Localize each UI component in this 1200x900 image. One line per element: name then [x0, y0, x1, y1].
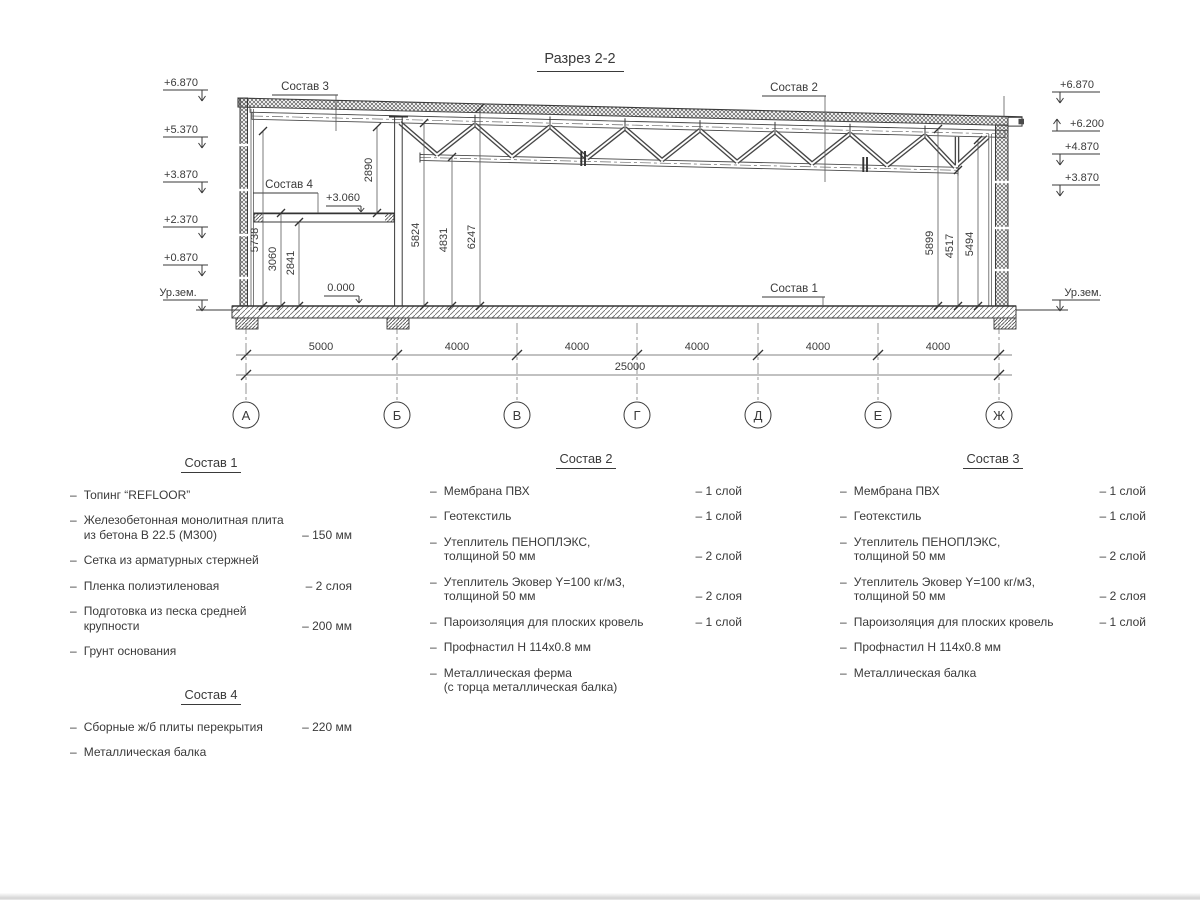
- composition-item: –Сетка из арматурных стержней: [70, 553, 352, 568]
- composition-item: –Утеплитель Эковер Y=100 кг/м3, толщиной…: [840, 575, 1146, 604]
- composition-list: –Сборные ж/б плиты перекрытия– 220 мм–Ме…: [70, 720, 352, 760]
- svg-text:Состав 1: Состав 1: [770, 283, 818, 295]
- composition-item: –Топинг “REFLOOR”: [70, 488, 352, 503]
- svg-text:6247: 6247: [466, 225, 478, 249]
- composition-block-3: Состав 3 –Мембрана ПВХ– 1 слой–Геотексти…: [840, 452, 1146, 691]
- composition-block-4: Состав 4 –Сборные ж/б плиты перекрытия– …: [70, 688, 352, 771]
- elevation-marks-right: +6.870 +6.200 +4.870 +3.870 Ур.зем.: [1052, 79, 1104, 311]
- composition-title: Состав 4: [181, 688, 240, 705]
- leader-sostav1: Состав 1: [762, 283, 825, 306]
- svg-text:4000: 4000: [445, 341, 469, 353]
- svg-text:4517: 4517: [944, 234, 956, 258]
- svg-text:2890: 2890: [363, 158, 375, 182]
- svg-text:+5.370: +5.370: [164, 124, 198, 136]
- intermediate-slab: [254, 213, 394, 222]
- svg-text:Ур.зем.: Ур.зем.: [159, 287, 196, 299]
- svg-text:+6.870: +6.870: [164, 77, 198, 89]
- composition-item: –Грунт основания: [70, 644, 352, 659]
- svg-text:4831: 4831: [438, 228, 450, 252]
- svg-text:5000: 5000: [309, 341, 333, 353]
- level-mark-3060: +3.060: [326, 192, 364, 212]
- composition-item: –Сборные ж/б плиты перекрытия– 220 мм: [70, 720, 352, 735]
- svg-text:+3.060: +3.060: [326, 192, 360, 204]
- svg-text:5899: 5899: [924, 231, 936, 255]
- svg-text:5824: 5824: [410, 223, 422, 247]
- axis-label: Д: [754, 408, 763, 423]
- composition-item: –Пароизоляция для плоских кровель– 1 сло…: [430, 615, 742, 630]
- svg-text:5738: 5738: [249, 228, 261, 252]
- axis-bubbles: А Б В Г Д Е Ж: [233, 402, 1012, 428]
- svg-text:3060: 3060: [267, 247, 279, 271]
- svg-text:Состав 2: Состав 2: [770, 82, 818, 94]
- dimension-line-total: 25000: [236, 361, 1012, 380]
- svg-text:4000: 4000: [685, 341, 709, 353]
- scan-edge-artifact: [0, 893, 1200, 900]
- left-wall: [239, 98, 254, 306]
- composition-item: –Металлическая ферма (с торца металличес…: [430, 666, 742, 695]
- composition-item: –Утеплитель Эковер Y=100 кг/м3, толщиной…: [430, 575, 742, 604]
- composition-item: –Геотекстиль– 1 слой: [430, 509, 742, 524]
- svg-text:25000: 25000: [615, 361, 646, 373]
- composition-item: –Профнастил Н 114х0.8 мм: [430, 640, 742, 655]
- svg-text:5494: 5494: [964, 232, 976, 256]
- svg-text:Состав 3: Состав 3: [281, 81, 329, 93]
- drawing-sheet: Разрез 2-2: [0, 0, 1200, 900]
- svg-text:Состав 4: Состав 4: [265, 179, 313, 191]
- axis-label: Б: [393, 408, 402, 423]
- composition-item: –Пленка полиэтиленовая– 2 слоя: [70, 579, 352, 594]
- axis-label: А: [242, 408, 251, 423]
- composition-block-2: Состав 2 –Мембрана ПВХ– 1 слой–Геотексти…: [430, 452, 742, 706]
- axis-label: Е: [874, 408, 883, 423]
- composition-list: –Мембрана ПВХ– 1 слой–Геотекстиль– 1 сло…: [430, 484, 742, 695]
- svg-text:+4.870: +4.870: [1065, 141, 1099, 153]
- svg-text:+2.370: +2.370: [164, 214, 198, 226]
- svg-text:+6.200: +6.200: [1070, 118, 1104, 130]
- composition-item: –Пароизоляция для плоских кровель– 1 сло…: [840, 615, 1146, 630]
- axis-label: В: [513, 408, 522, 423]
- composition-list: –Топинг “REFLOOR”–Железобетонная монолит…: [70, 488, 352, 659]
- composition-item: –Геотекстиль– 1 слой: [840, 509, 1146, 524]
- svg-text:+3.870: +3.870: [1065, 172, 1099, 184]
- section-drawing: Разрез 2-2: [0, 0, 1200, 444]
- composition-item: –Металлическая балка: [70, 745, 352, 760]
- composition-item: –Подготовка из песка средней крупности– …: [70, 604, 352, 633]
- composition-title: Состав 2: [556, 452, 615, 469]
- floor-slab: [196, 306, 1068, 329]
- svg-text:4000: 4000: [565, 341, 589, 353]
- composition-item: –Мембрана ПВХ– 1 слой: [840, 484, 1146, 499]
- svg-text:2841: 2841: [285, 251, 297, 275]
- composition-title: Состав 1: [181, 456, 240, 473]
- svg-text:0.000: 0.000: [327, 282, 355, 294]
- composition-item: –Железобетонная монолитная плита из бето…: [70, 513, 352, 542]
- composition-item: –Мембрана ПВХ– 1 слой: [430, 484, 742, 499]
- svg-text:+0.870: +0.870: [164, 252, 198, 264]
- composition-item: –Утеплитель ПЕНОПЛЭКС, толщиной 50 мм– 2…: [840, 535, 1146, 564]
- drawing-title: Разрез 2-2: [544, 51, 615, 67]
- axis-label: Ж: [993, 408, 1005, 423]
- composition-item: –Утеплитель ПЕНОПЛЭКС, толщиной 50 мм– 2…: [430, 535, 742, 564]
- elevation-marks-left: +6.870 +5.370 +3.870 +2.370 +0.870 Ур.зе…: [159, 77, 208, 311]
- composition-title: Состав 3: [963, 452, 1022, 469]
- axis-label: Г: [633, 408, 640, 423]
- composition-list: –Мембрана ПВХ– 1 слой–Геотекстиль– 1 сло…: [840, 484, 1146, 681]
- dimension-line-spans: 5000 4000 4000 4000 4000 4000: [236, 341, 1012, 360]
- svg-text:4000: 4000: [926, 341, 950, 353]
- composition-item: –Профнастил Н 114х0.8 мм: [840, 640, 1146, 655]
- composition-block-1: Состав 1 –Топинг “REFLOOR”–Железобетонна…: [70, 456, 352, 670]
- svg-text:Ур.зем.: Ур.зем.: [1064, 287, 1101, 299]
- svg-text:+6.870: +6.870: [1060, 79, 1094, 91]
- svg-text:+3.870: +3.870: [164, 169, 198, 181]
- level-mark-0000: 0.000: [324, 282, 362, 303]
- composition-item: –Металлическая балка: [840, 666, 1146, 681]
- svg-text:4000: 4000: [806, 341, 830, 353]
- column-B: [389, 116, 408, 306]
